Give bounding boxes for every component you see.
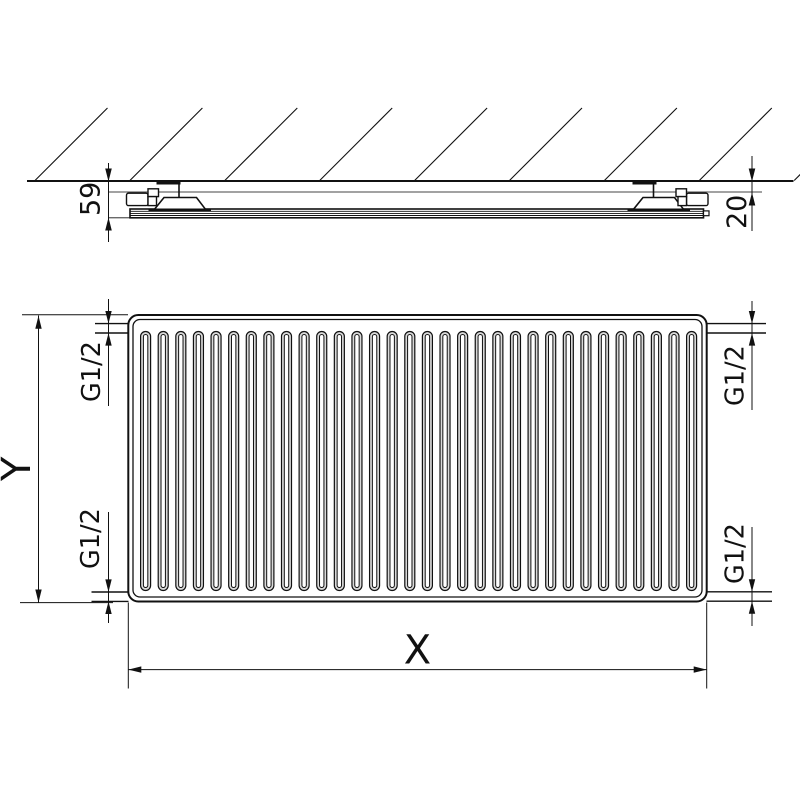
hatch-line: [604, 108, 677, 181]
arrow-left-icon: [128, 666, 141, 672]
hatch-line: [35, 108, 108, 181]
bracket-foot: [634, 198, 684, 210]
dimension-g12-bottom-right: G1/2: [721, 523, 756, 626]
fin-slot-inner: [214, 335, 218, 588]
bracket-clip-lower: [678, 197, 687, 206]
fin-slot-inner: [531, 335, 535, 588]
arrow-up-icon: [749, 333, 755, 346]
fin-slot-inner: [302, 335, 306, 588]
technical-drawing: 59 20: [0, 0, 800, 800]
dimension-width-x: X: [128, 603, 706, 689]
height-dim-label: Y: [0, 456, 40, 482]
fin-slot-inner: [179, 335, 183, 588]
hatch-line: [510, 108, 583, 181]
fin-slot-inner: [161, 335, 165, 588]
side-view: 59 20: [27, 108, 800, 242]
connection-stub-top-right: [707, 324, 767, 333]
dimension-gap-20: 20: [722, 156, 755, 231]
hatch-line: [320, 108, 393, 181]
fin-slot-inner: [425, 335, 429, 588]
bracket-clip-body: [687, 193, 709, 205]
arrow-up-icon: [105, 601, 111, 614]
arrow-down-icon: [35, 590, 41, 603]
gap-dim-label: 20: [722, 195, 753, 229]
bracket-clip-upper: [676, 189, 687, 197]
fin-slot-inner: [689, 335, 693, 588]
fin-slot-inner: [267, 335, 271, 588]
connection-label-top-right: G1/2: [721, 345, 751, 406]
bracket-clip-upper: [148, 189, 159, 197]
bracket-foot: [155, 198, 206, 210]
arrow-up-icon: [105, 218, 112, 231]
fin-slot-inner: [619, 335, 623, 588]
fin-slot-inner: [443, 335, 447, 588]
fin-slot-inner: [566, 335, 570, 588]
dimension-depth-59: 59: [76, 163, 112, 242]
fin-slot-inner: [196, 335, 200, 588]
arrow-down-icon: [105, 579, 111, 592]
fin-slot-inner: [143, 335, 147, 588]
depth-dim-label: 59: [76, 182, 107, 216]
fin-slot-inner: [284, 335, 288, 588]
fin-slot-inner: [496, 335, 500, 588]
fin-slot-inner: [355, 335, 359, 588]
connection-stub-bottom-right: [707, 592, 773, 601]
fin-slot-inner: [584, 335, 588, 588]
fin-slot-inner: [548, 335, 552, 588]
connection-stub-top-left: [95, 324, 129, 333]
arrow-down-icon: [105, 169, 112, 182]
front-view: G1/2 G1/2 G1/2 G1/2: [0, 299, 772, 689]
fin-slot-inner: [637, 335, 641, 588]
connection-label-bottom-right: G1/2: [721, 523, 751, 584]
width-dim-label: X: [404, 628, 431, 674]
hatch-line: [699, 108, 772, 181]
fin-slot-inner: [320, 335, 324, 588]
fin-slot-inner: [672, 335, 676, 588]
connection-stub-bottom-left: [92, 592, 129, 601]
fin-slot-inner: [408, 335, 412, 588]
fin-slot-inner: [372, 335, 376, 588]
fin-slot-inner: [231, 335, 235, 588]
hatch-line: [415, 108, 488, 181]
radiator-panel-profile: [130, 209, 709, 218]
mounting-bracket-right: [628, 183, 709, 210]
bracket-clip-body: [127, 193, 149, 205]
mounting-bracket-left: [127, 183, 212, 210]
hatch-line: [130, 108, 203, 181]
fin-slot-inner: [390, 335, 394, 588]
arrow-down-icon: [105, 311, 111, 324]
fin-slot-inner: [601, 335, 605, 588]
hatch-line: [794, 108, 800, 181]
fin-slot-inner: [337, 335, 341, 588]
hatch-line: [225, 108, 297, 181]
arrow-up-icon: [749, 601, 755, 614]
fin-slot-inner: [460, 335, 464, 588]
dimension-g12-bottom-left: G1/2: [76, 508, 112, 623]
arrow-right-icon: [694, 666, 707, 672]
fin-slot-inner: [249, 335, 253, 588]
arrow-down-icon: [749, 311, 755, 324]
connection-label-top-left: G1/2: [77, 341, 107, 402]
fin-slot-inner: [478, 335, 482, 588]
connection-label-bottom-left: G1/2: [76, 508, 106, 569]
wall-hatch: [35, 108, 800, 181]
arrow-down-icon: [749, 169, 756, 182]
dimension-g12-top-right: G1/2: [721, 301, 756, 410]
panel-end-tab: [704, 211, 710, 216]
fin-slot-inner: [513, 335, 517, 588]
fin-slot-inner: [654, 335, 658, 588]
bracket-clip-lower: [148, 197, 157, 206]
drawing-canvas: 59 20: [0, 0, 800, 800]
arrow-up-icon: [35, 316, 41, 329]
